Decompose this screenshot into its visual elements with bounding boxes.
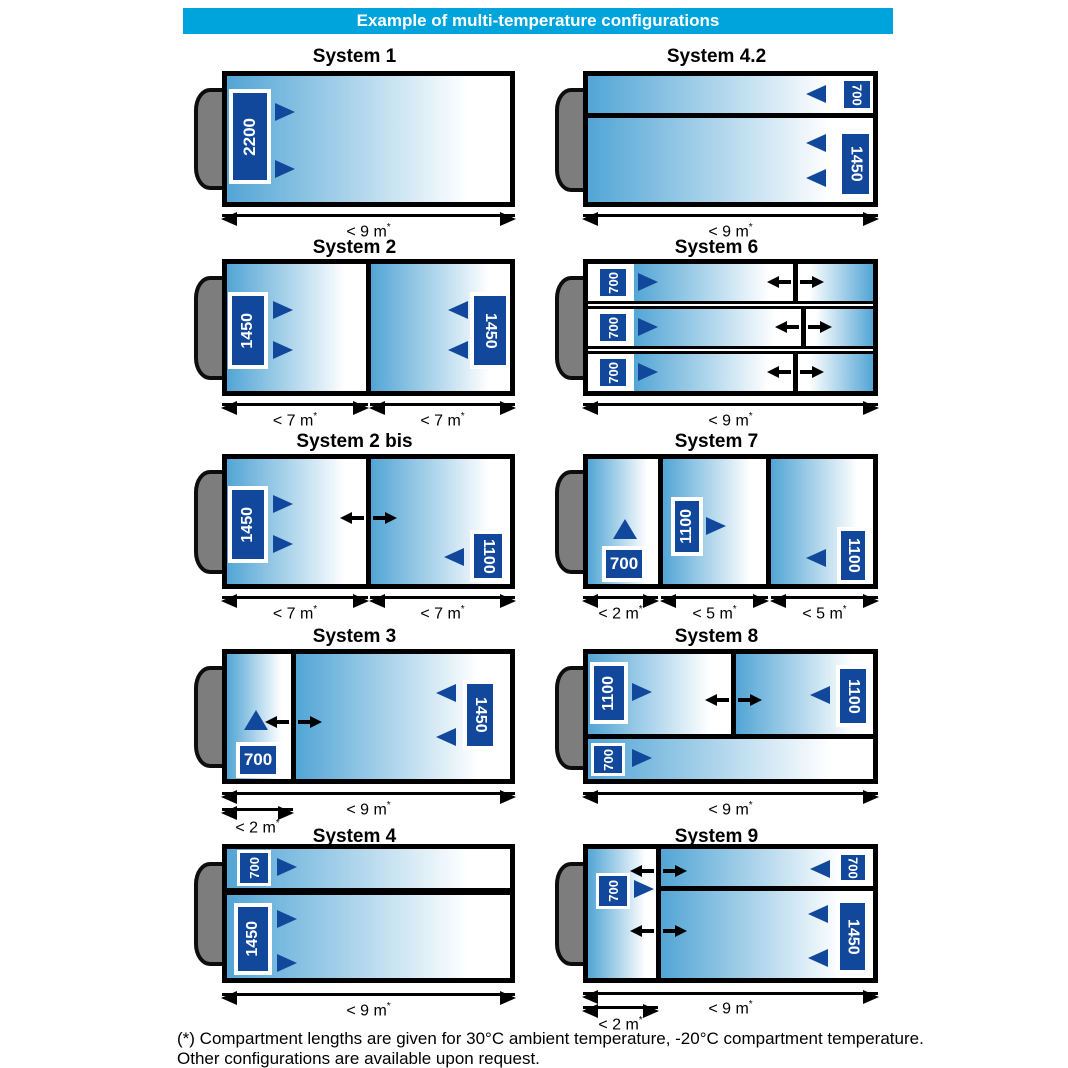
airflow-left-icon (448, 341, 468, 359)
unit-capacity-label: 1100 (470, 530, 506, 582)
horizontal-partition (227, 888, 510, 895)
dimension-footnote-mark: * (313, 604, 317, 615)
dimension-label: < 7 m* (222, 602, 368, 622)
dimension-text: < 7 m (420, 412, 460, 429)
dimension-arrow-icon (583, 596, 658, 599)
partition-move-left-icon (775, 319, 799, 335)
dimension-text: < 9 m (708, 412, 748, 429)
multi-temperature-configurations-diagram: Example of multi-temperature configurati… (0, 0, 1068, 1068)
airflow-left-icon (806, 549, 826, 567)
dimension-arrow-icon (583, 992, 878, 995)
unit-capacity-label: 2200 (229, 89, 271, 184)
unit-capacity-value: 700 (601, 749, 616, 771)
system-2-title: System 2 (194, 237, 515, 259)
dimension-label: < 7 m* (222, 409, 368, 429)
airflow-left-icon (806, 85, 826, 103)
dimension-arrow-icon (583, 214, 878, 217)
dimension-arrow-icon (583, 403, 878, 406)
partition-move-left-icon (630, 863, 654, 879)
dimension-label: < 9 m* (222, 999, 515, 1019)
unit-capacity-label: 700 (838, 852, 868, 883)
dimension-footnote-mark: * (639, 1015, 643, 1026)
airflow-left-icon (808, 949, 828, 967)
unit-capacity-value: 700 (247, 857, 262, 879)
unit-capacity-label: 700 (237, 850, 271, 886)
unit-capacity-label: 1450 (463, 680, 497, 750)
unit-capacity-label: 1100 (590, 662, 628, 724)
unit-capacity-value: 700 (606, 272, 621, 294)
airflow-right-icon (273, 495, 293, 513)
airflow-up-icon (613, 519, 637, 539)
system-6-title: System 6 (555, 237, 878, 259)
unit-capacity-value: 700 (606, 362, 621, 384)
dimension-arrow-icon (583, 1006, 658, 1009)
dimension-arrow-icon (583, 792, 878, 795)
compartment-bottom (588, 739, 873, 779)
compartment-bottom (588, 118, 873, 202)
airflow-right-icon (638, 273, 658, 291)
unit-capacity-value: 1100 (600, 676, 618, 711)
airflow-right-icon (277, 954, 297, 972)
unit-capacity-value: 1100 (844, 679, 862, 714)
dimension-footnote-mark: * (749, 222, 753, 233)
airflow-left-icon (436, 684, 456, 702)
footnote-line-1: (*) Compartment lengths are given for 30… (177, 1029, 924, 1049)
cargo-box: 1450 1100 (222, 454, 515, 589)
partition-move-left-icon (705, 692, 729, 708)
airflow-left-icon (810, 860, 830, 878)
footnote: (*) Compartment lengths are given for 30… (177, 1029, 924, 1068)
unit-capacity-value: 1100 (479, 539, 497, 574)
dimension-footnote-mark: * (749, 999, 753, 1010)
unit-capacity-value: 700 (244, 750, 272, 770)
system-3-title: System 3 (194, 626, 515, 648)
dimension-label: < 7 m* (370, 409, 515, 429)
dimension-arrow-icon (661, 596, 768, 599)
dimension-footnote-mark: * (639, 604, 643, 615)
partition-move-right-icon (738, 692, 762, 708)
dimension-text: < 7 m (420, 605, 460, 622)
dimension-arrow-icon (222, 403, 368, 406)
unit-capacity-value: 1450 (244, 921, 262, 957)
cargo-box: 700 700 1450 (583, 844, 878, 983)
partition-move-right-icon (800, 364, 824, 380)
unit-capacity-label: 1450 (228, 486, 268, 563)
dimension-text: < 5 m (802, 605, 842, 622)
unit-capacity-value: 1450 (239, 313, 257, 349)
cargo-box: 1100 1100 700 (583, 649, 878, 784)
dimension-arrow-icon (222, 214, 515, 217)
unit-capacity-label: 1450 (470, 292, 510, 369)
dimension-arrow-icon (771, 596, 878, 599)
unit-capacity-value: 700 (606, 880, 621, 902)
unit-capacity-label: 700 (236, 742, 280, 778)
partition-move-right-icon (800, 274, 824, 290)
dimension-text: < 9 m (708, 801, 748, 818)
compartment-top (588, 76, 873, 113)
footnote-line-2: Other configurations are available upon … (177, 1049, 924, 1068)
unit-capacity-label: 1450 (234, 903, 272, 975)
airflow-right-icon (638, 363, 658, 381)
airflow-right-icon (273, 535, 293, 553)
dimension-label: < 9 m* (583, 798, 878, 818)
title-bar: Example of multi-temperature configurati… (183, 8, 893, 34)
unit-capacity-value: 1100 (844, 538, 862, 573)
unit-capacity-label: 1450 (228, 292, 268, 369)
dimension-footnote-mark: * (387, 222, 391, 233)
airflow-right-icon (277, 910, 297, 928)
airflow-right-icon (275, 160, 295, 178)
partition-move-left-icon (767, 274, 791, 290)
dimension-text: < 7 m (273, 412, 313, 429)
dimension-footnote-mark: * (387, 800, 391, 811)
unit-capacity-value: 1450 (844, 919, 862, 955)
airflow-right-icon (632, 749, 652, 767)
unit-capacity-label: 1100 (671, 497, 703, 556)
cargo-box: 700 1450 (222, 844, 515, 983)
cargo-box: 700 700 700 (583, 259, 878, 396)
dimension-arrow-icon (222, 993, 515, 996)
dimension-text: < 9 m (708, 1000, 748, 1017)
partition-move-right-icon (298, 714, 322, 730)
dimension-arrow-icon (222, 792, 515, 795)
system-4-2-title: System 4.2 (555, 46, 878, 68)
dimension-arrow-icon (370, 596, 515, 599)
unit-capacity-label: 1450 (836, 899, 869, 974)
partition-move-right-icon (373, 510, 397, 526)
dimension-arrow-icon (222, 808, 293, 811)
system-7-title: System 7 (555, 431, 878, 453)
partition-move-left-icon (340, 510, 364, 526)
airflow-right-icon (273, 341, 293, 359)
airflow-right-icon (275, 103, 295, 121)
dimension-text: < 5 m (692, 605, 732, 622)
unit-capacity-value: 1100 (678, 509, 696, 544)
partition-move-left-icon (265, 714, 289, 730)
cargo-box: 700 1100 1100 (583, 454, 878, 589)
dimension-footnote-mark: * (313, 411, 317, 422)
dimension-footnote-mark: * (733, 604, 737, 615)
row-divider (588, 346, 873, 354)
airflow-right-icon (273, 301, 293, 319)
unit-capacity-value: 700 (850, 84, 865, 106)
unit-capacity-value: 700 (606, 317, 621, 339)
partition-move-right-icon (663, 923, 687, 939)
airflow-left-icon (436, 728, 456, 746)
unit-capacity-label: 700 (597, 311, 629, 344)
system-1-title: System 1 (194, 46, 515, 68)
dimension-footnote-mark: * (749, 411, 753, 422)
dimension-footnote-mark: * (387, 1001, 391, 1012)
dimension-arrow-icon (370, 403, 515, 406)
unit-capacity-label: 1450 (838, 130, 873, 198)
dimension-footnote-mark: * (461, 411, 465, 422)
airflow-left-icon (808, 905, 828, 923)
airflow-right-icon (706, 517, 726, 535)
unit-capacity-value: 700 (846, 857, 861, 879)
airflow-left-icon (448, 301, 468, 319)
airflow-right-icon (638, 318, 658, 336)
unit-capacity-label: 1100 (837, 527, 869, 584)
airflow-right-icon (634, 880, 654, 898)
unit-capacity-value: 1450 (847, 146, 865, 182)
partition-move-right-icon (663, 863, 687, 879)
airflow-right-icon (632, 683, 652, 701)
unit-capacity-label: 700 (841, 78, 873, 111)
airflow-left-icon (806, 169, 826, 187)
cargo-box: 1450 1450 (222, 259, 515, 396)
dimension-text: < 9 m (346, 801, 386, 818)
unit-capacity-label: 700 (591, 743, 625, 776)
dimension-text: < 2 m (598, 605, 638, 622)
airflow-left-icon (444, 548, 464, 566)
partition-move-right-icon (808, 319, 832, 335)
dimension-label: < 2 m* (583, 602, 658, 622)
unit-capacity-value: 2200 (240, 118, 260, 156)
unit-capacity-label: 700 (602, 546, 646, 582)
cargo-box: 700 1450 (583, 71, 878, 207)
airflow-left-icon (810, 686, 830, 704)
unit-capacity-value: 700 (610, 554, 638, 574)
unit-capacity-label: 1100 (836, 665, 870, 727)
unit-capacity-label: 700 (596, 873, 630, 909)
partition-move-left-icon (767, 364, 791, 380)
dimension-label: < 7 m* (370, 602, 515, 622)
row-divider (588, 301, 873, 309)
cargo-box: 2200 (222, 71, 515, 207)
cargo-box: 700 1450 (222, 649, 515, 784)
airflow-left-icon (806, 134, 826, 152)
dimension-label: < 5 m* (661, 602, 768, 622)
airflow-right-icon (277, 858, 297, 876)
unit-capacity-value: 1450 (481, 313, 499, 349)
partition-move-left-icon (630, 923, 654, 939)
dimension-arrow-icon (222, 596, 368, 599)
dimension-footnote-mark: * (843, 604, 847, 615)
unit-capacity-value: 1450 (239, 507, 257, 543)
unit-capacity-label: 700 (597, 356, 629, 389)
dimension-footnote-mark: * (461, 604, 465, 615)
dimension-label: < 5 m* (771, 602, 878, 622)
dimension-text: < 7 m (273, 605, 313, 622)
unit-capacity-value: 1450 (471, 697, 489, 733)
dimension-text: < 9 m (346, 1002, 386, 1019)
system-8-title: System 8 (555, 626, 878, 648)
dimension-footnote-mark: * (749, 800, 753, 811)
system-2-bis-title: System 2 bis (194, 431, 515, 453)
unit-capacity-label: 700 (597, 266, 629, 299)
dimension-label: < 9 m* (583, 409, 878, 429)
